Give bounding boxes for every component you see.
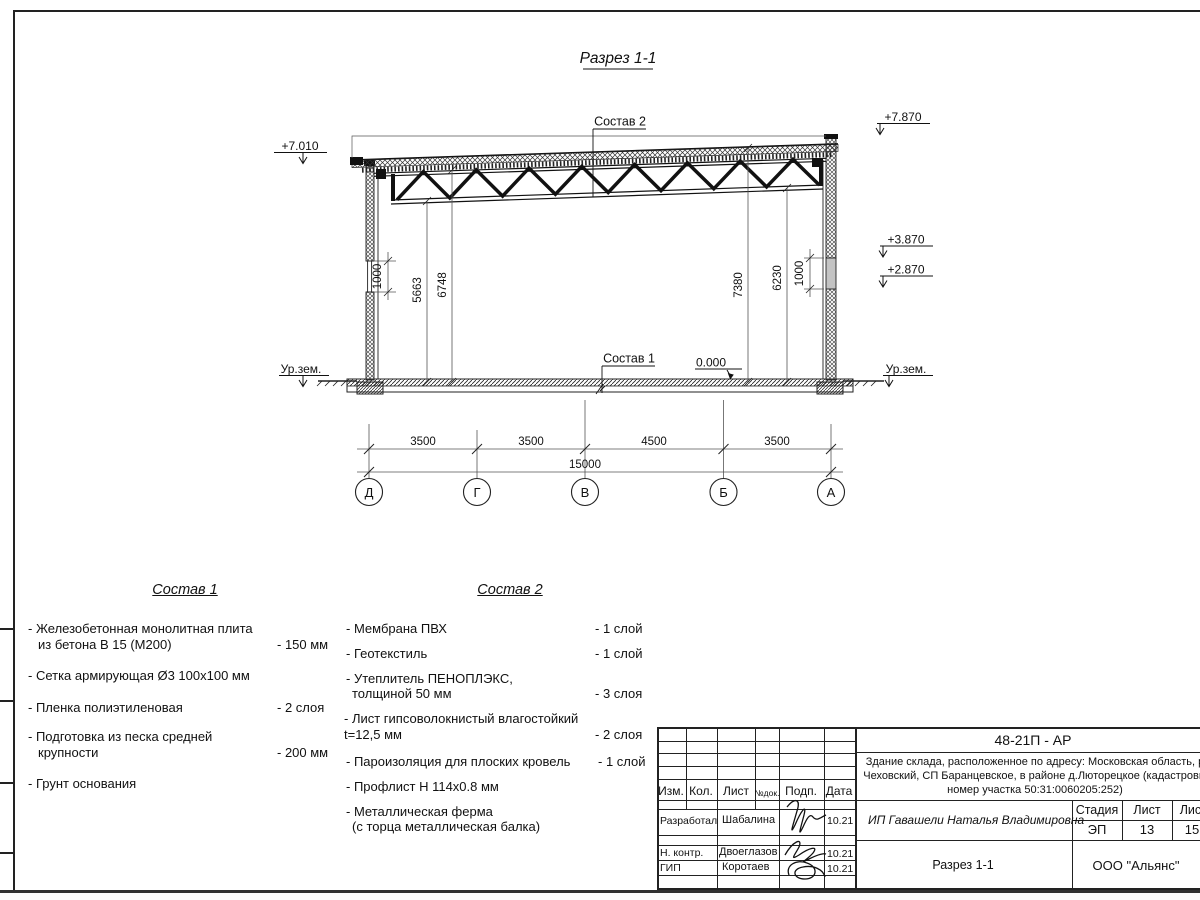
svg-text:Состав 1: Состав 1 — [603, 352, 655, 366]
axis-bubble-3: В — [581, 485, 590, 500]
span-dim-1: 3500 — [410, 436, 436, 448]
composition2-item: - Мембрана ПВХ — [346, 621, 447, 636]
project-description-line: Здание склада, расположенное по адресу: … — [866, 756, 1200, 768]
sheets-label: Листов — [1180, 803, 1200, 817]
composition2-item: - Утеплитель ПЕНОПЛЭКС, — [346, 671, 513, 686]
composition1-value: - 2 слоя — [277, 700, 324, 715]
titleblock-line — [1122, 800, 1123, 840]
frame-fold-mark — [0, 628, 14, 630]
titleblock-line — [855, 727, 857, 890]
frame-fold-mark — [0, 782, 14, 784]
elevation-mark-right-top: +7.870 — [876, 110, 930, 135]
composition2-item: толщиной 50 мм — [352, 686, 452, 701]
composition1-item: - Подготовка из песка средней — [28, 729, 212, 744]
header-ndok: №док. — [755, 788, 780, 798]
signature-stroke — [788, 862, 825, 879]
composition2-item: (с торца металлическая балка) — [352, 819, 540, 834]
svg-text:+3.870: +3.870 — [887, 233, 924, 247]
composition2-value: - 1 слой — [595, 621, 643, 636]
wall-right — [823, 134, 838, 380]
dim-6230: 6230 — [772, 265, 784, 291]
dim-7380: 7380 — [733, 272, 745, 298]
composition1-value: - 150 мм — [277, 637, 328, 652]
stage-value: ЭП — [1088, 822, 1107, 837]
elevation-mark-left-top: +7.010 — [274, 139, 327, 164]
section-drawing: Разрез 1-1 — [0, 0, 1200, 560]
dim-1000-right: 1000 — [794, 261, 806, 287]
titleblock-line — [657, 727, 1200, 729]
composition2-item: - Геотекстиль — [346, 646, 427, 661]
project-description-line: номер участка 50:31:0060205:252) — [947, 784, 1123, 796]
composition2-value: - 1 слой — [598, 754, 646, 769]
titleblock-line — [686, 727, 687, 809]
composition1-item: - Железобетонная монолитная плита — [28, 621, 253, 636]
roof-edge-cap — [350, 157, 363, 165]
ground-level-mark-left: Ур.зем. — [279, 362, 329, 387]
titleblock-line — [855, 752, 1200, 753]
vertical-dimensions — [423, 144, 791, 386]
staff-name: Шабалина — [722, 814, 775, 826]
header-data: Дата — [826, 784, 853, 798]
svg-text:0.000: 0.000 — [696, 356, 726, 370]
titleblock-line — [657, 727, 659, 890]
document-code: 48-21П - АР — [995, 732, 1072, 748]
frame-fold-mark — [0, 852, 14, 854]
composition1-title: Состав 1 — [152, 582, 217, 598]
composition2-item: t=12,5 мм — [344, 727, 402, 742]
svg-text:Состав 2: Состав 2 — [594, 115, 646, 129]
dim-5663: 5663 — [412, 277, 424, 303]
titleblock-line — [855, 840, 1200, 841]
composition1-item: - Сетка армирующая Ø3 100х100 мм — [28, 668, 250, 683]
staff-name: Двоеглазов — [719, 846, 777, 858]
staff-date: 10.21 — [827, 863, 853, 875]
dim-1000-left: 1000 — [372, 264, 384, 290]
axis-bubble-2: Г — [473, 485, 480, 500]
header-kol: Кол. — [689, 784, 713, 798]
staff-role: Н. контр. — [660, 847, 703, 859]
composition2-value: - 2 слоя — [595, 727, 642, 742]
company-name: ООО "Альянс" — [1093, 858, 1180, 873]
project-description-line: Чеховский, СП Баранцевское, в районе д.Л… — [863, 770, 1200, 782]
header-list: Лист — [723, 784, 749, 798]
composition2-item: - Металлическая ферма — [346, 804, 493, 819]
section-title: Разрез 1-1 — [580, 50, 657, 67]
zero-level-mark: 0.000 — [695, 356, 742, 380]
composition1-item: - Пленка полиэтиленовая — [28, 700, 183, 715]
composition2-item: - Пароизоляция для плоских кровель — [346, 754, 570, 769]
frame-bottom-line — [0, 890, 1200, 893]
client-name: ИП Гавашели Наталья Владимировна — [868, 813, 1084, 827]
ground-level-mark-right: Ур.зем. — [883, 362, 933, 387]
elevation-mark-right-lower: +2.870 — [879, 263, 933, 288]
axis-bubble-5: А — [827, 485, 836, 500]
signature-stroke — [785, 841, 826, 861]
titleblock-line — [657, 800, 1200, 801]
staff-role: Разработал — [660, 815, 717, 827]
composition1-item: - Грунт основания — [28, 776, 136, 791]
svg-text:Ур.зем.: Ур.зем. — [281, 362, 322, 376]
sheet-label: Лист — [1133, 803, 1160, 817]
total-dim: 15000 — [569, 459, 601, 471]
staff-name: Коротаев — [722, 861, 770, 873]
staff-date: 10.21 — [827, 815, 853, 827]
composition2-title: Состав 2 — [477, 582, 542, 598]
drawing-sheet: { "drawing": { "title": "Разрез 1-1", "c… — [0, 0, 1200, 900]
window-dim-right — [804, 249, 824, 297]
svg-text:+7.870: +7.870 — [884, 110, 921, 124]
window-right — [826, 258, 836, 289]
svg-text:+2.870: +2.870 — [887, 263, 924, 277]
composition1-item: крупности — [38, 745, 98, 760]
svg-text:Ур.зем.: Ур.зем. — [886, 362, 927, 376]
staff-date: 10.21 — [827, 848, 853, 860]
titleblock-line — [1072, 820, 1200, 821]
composition2-value: - 3 слоя — [595, 686, 642, 701]
composition2-item: - Профлист Н 114х0.8 мм — [346, 779, 499, 794]
header-izm: Изм. — [658, 784, 684, 798]
stage-label: Стадия — [1076, 803, 1119, 817]
drawing-name: Разрез 1-1 — [932, 858, 993, 872]
footing-left — [357, 382, 383, 394]
sheets-value: 15 — [1185, 822, 1199, 837]
dim-6748: 6748 — [437, 272, 449, 298]
svg-text:+7.010: +7.010 — [281, 139, 318, 153]
composition1-item: из бетона В 15 (М200) — [38, 637, 172, 652]
composition1-value: - 200 мм — [277, 745, 328, 760]
sheet-value: 13 — [1140, 822, 1154, 837]
footing-right — [817, 382, 843, 394]
elevation-mark-right-upper: +3.870 — [879, 233, 933, 258]
span-dim-2: 3500 — [518, 436, 544, 448]
axis-bubble-1: Д — [365, 485, 374, 500]
titleblock-line — [657, 888, 1200, 890]
grid-bubbles — [356, 479, 845, 506]
roof-truss — [374, 158, 826, 204]
composition2-item: - Лист гипсоволокнистый влагостойкий — [344, 711, 578, 726]
axis-bubble-4: Б — [719, 485, 728, 500]
composition2-value: - 1 слой — [595, 646, 643, 661]
parapet-cap — [824, 134, 838, 139]
frame-fold-mark — [0, 700, 14, 702]
signatures — [779, 793, 829, 888]
staff-role: ГИП — [660, 862, 681, 874]
titleblock-line — [717, 727, 718, 890]
span-dim-3: 4500 — [641, 436, 667, 448]
signature-stroke — [787, 801, 826, 832]
span-dim-4: 3500 — [764, 436, 790, 448]
titleblock-line — [1172, 800, 1173, 840]
